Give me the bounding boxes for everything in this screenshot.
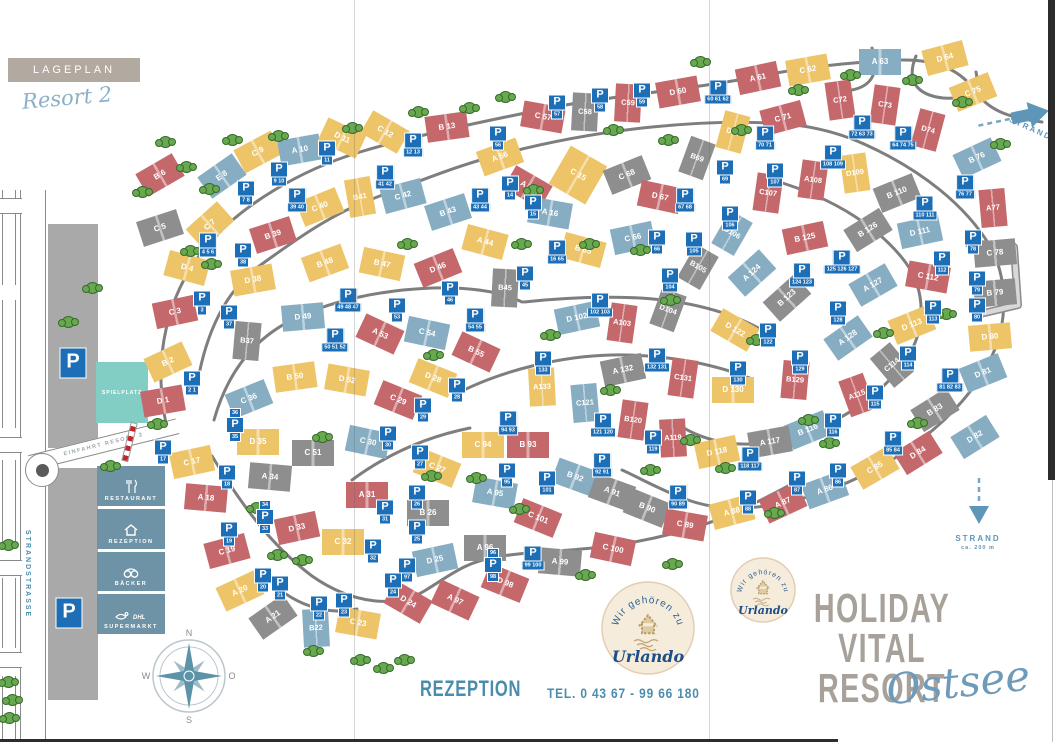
tree-icon [184,245,197,257]
tree-icon [401,238,414,250]
posthorn-icon [116,613,128,619]
building-A-34: A 34 [248,462,292,492]
tree-icon [136,186,149,198]
parking-marker-106: P106 [721,206,739,231]
parking-lot-south [48,468,98,700]
parking-marker-41-42: P41 42 [375,165,395,190]
parking-marker-86: P86 [829,463,847,488]
parking-marker-79: P79 [968,271,986,296]
compass-rose: N O S W [139,626,239,726]
parking-marker-58: P58 [591,88,609,113]
cross-street [0,437,22,453]
reception-phone: REZEPTION TEL. 0 43 67 - 99 66 180 [420,676,727,702]
parking-marker-46: P46 [441,281,459,306]
tree-icon [792,84,805,96]
tree-icon [544,329,557,341]
tree-icon [203,183,216,195]
tree-icon [877,327,890,339]
side-street [2,578,16,648]
tree-icon [604,384,617,396]
scan-edge [1052,480,1054,742]
parking-marker-30: P30 [379,426,397,451]
parking-marker-16-65: P16 65 [547,240,567,265]
parking-marker-29: P29 [414,398,432,423]
parking-marker-70-71: P70 71 [755,126,775,151]
tree-icon [607,124,620,136]
parking-marker-43-44: P43 44 [470,188,490,213]
building-D-49: D 49 [281,302,325,332]
parking-marker-125-126-127: P125 126 127 [824,250,861,275]
parking-marker-28: P28 [448,378,466,403]
parking-marker-39-40: P39 40 [287,188,307,213]
parking-marker: P [60,348,87,379]
parking-marker-128: P128 [829,301,847,326]
parking-marker-17: P17 [154,440,172,465]
legend-restaurant: RESTAURANT [97,466,165,506]
parking-marker-15: P15 [524,195,542,220]
tree-icon [634,244,647,256]
parking-marker-69: P69 [716,160,734,185]
urlando-badge: Wir gehören zu Urlando [601,581,695,675]
parking-marker-19: P19 [220,522,238,547]
building-C-32: C 32 [322,529,364,555]
cross-street [0,652,22,668]
building-A-63: A 63 [859,49,901,75]
tree-icon [662,134,675,146]
parking-marker-57: P57 [548,95,566,120]
tree-icon [307,645,320,657]
tree-icon [956,96,969,108]
tree-icon [62,316,75,328]
legend-rezeption-label: REZEPTION [109,539,154,545]
parking-marker-85-84: P85 84 [883,431,903,456]
building-A-77: A77 [978,188,1007,228]
parking-marker-72-63-73: P72 63 73 [848,115,875,140]
parking-marker-97: P97 [398,558,416,583]
parking-marker-20: P20 [254,568,272,593]
scan-edge [1048,0,1055,480]
parking-marker-4-5-6: P4 5 6 [199,233,217,258]
parking-marker-27: P27 [411,445,429,470]
parking-marker-56: P56 [489,126,507,151]
urlando-badge: Wir gehören zu Urlando [730,557,796,623]
legend-baecker-label: BÄCKER [115,581,148,587]
parking-marker-114: P114 [899,346,917,371]
parking-marker-116: P116 [824,413,842,438]
tree-icon [180,161,193,173]
side-street [2,460,16,548]
tree-icon [844,69,857,81]
parking-marker-95: P95 [498,463,516,488]
parking-marker-115: P115 [866,385,884,410]
compass-n: N [186,628,193,638]
building-C-94: C 94 [462,432,504,458]
reception-tel: TEL. 0 43 67 - 99 66 180 [547,685,700,701]
parking-marker-124-123: P124 123 [789,263,815,288]
parking-lot-north [48,224,98,448]
parking-marker-21: P21 [271,576,289,601]
parking-marker-101: P101 [538,471,556,496]
building-C-51: C 51 [292,440,334,466]
tree-icon [499,91,512,103]
strand-bottom-distance: ca. 200 m [948,545,1008,551]
tree-icon [296,554,309,566]
svg-text:Urlando: Urlando [738,604,788,617]
roundabout [25,453,59,487]
parking-marker-38: P38 [234,243,252,268]
parking-marker-2-1: P2 1 [183,371,201,396]
parking-marker-118-117: P118 117 [737,447,762,472]
parking-marker-11: P11 [318,141,336,166]
parking-marker-53: P53 [388,298,406,323]
parking-marker-94-93: P94 93 [498,411,518,436]
parking-marker-45: P45 [516,266,534,291]
parking-marker-37: P37 [220,305,238,330]
parking-marker-119: P119 [644,430,662,455]
parking-marker-102-103: P102 103 [587,293,613,318]
parking-marker-130: P130 [729,361,747,386]
dhl-icon: DHL [133,615,146,621]
tree-icon [272,130,285,142]
tree-icon [6,694,19,706]
tree-icon [159,136,172,148]
tree-icon [694,56,707,68]
parking-marker-67-68: P67 68 [675,188,695,213]
parking-marker-110-111: P110 111 [913,196,938,221]
strand-arrow-bottom-icon [965,478,993,530]
building-C-131: C131 [667,357,698,398]
parking-marker-50-51-52: P50 51 52 [321,328,348,353]
parking-marker-107: P107 [766,163,784,188]
parking-marker-113: P113 [924,300,942,325]
resort-site-map: EINFAHRT RESORT 2 LAGEPLAN Resort 2 SPIE… [0,0,1055,742]
svg-text:Urlando: Urlando [612,647,685,666]
cross-street [0,560,22,576]
tree-icon [470,472,483,484]
parking-marker-9-10: P9 10 [270,162,288,187]
tree-icon [2,676,15,688]
parking-marker-54-55: P54 55 [465,308,485,333]
house-icon [123,523,139,537]
tree-icon [513,503,526,515]
parking-marker-133: P133 [534,351,552,376]
tree-icon [666,558,679,570]
parking-marker-22: P22 [310,596,328,621]
parking-marker-3: P3 [193,291,211,316]
strandstrasse-label: STRANDSTRASSE [24,530,31,720]
parking-marker-80: P80 [968,298,986,323]
fork-knife-icon [123,479,139,494]
parking-marker-108-109: P108 109 [820,145,846,170]
legend-restaurant-label: RESTAURANT [105,496,157,502]
parking-marker-104: P104 [661,268,679,293]
tree-icon [377,662,390,674]
tree-icon [104,460,117,472]
tree-icon [644,464,657,476]
parking-marker-78: P78 [964,230,982,255]
legend-baecker: BÄCKER [97,552,165,591]
parking-marker-33: 34P33 [256,500,274,534]
parking-marker-31: P31 [376,500,394,525]
parking-marker-98: 96P98 [484,548,502,582]
building-B-45: B45 [491,268,519,307]
building-B-93: B 93 [507,432,549,458]
tree-icon [398,654,411,666]
tree-icon [463,102,476,114]
tree-icon [3,712,16,724]
building-D-80: D 80 [968,322,1012,352]
tree-icon [346,122,359,134]
tree-icon [719,462,732,474]
tree-icon [86,282,99,294]
tree-icon [579,569,592,581]
parking-marker-87: P87 [788,471,806,496]
parking-marker-132-131: P132 131 [644,348,670,373]
fold-line [354,0,355,742]
parking-marker-12-13: P12 13 [403,133,423,158]
parking-marker-66: P66 [648,230,666,255]
parking-marker-14: P14 [501,176,519,201]
parking-marker-26: P26 [408,485,426,510]
tree-icon [802,414,815,426]
compass-e: O [228,671,235,681]
parking-marker-121-120: P121 120 [590,413,616,438]
parking-marker-59: P59 [633,83,651,108]
parking-marker-81-82-83: P81 82 83 [936,368,963,393]
tree-icon [911,417,924,429]
parking-marker-112: P112 [933,251,951,276]
tree-icon [205,258,218,270]
tree-icon [735,124,748,136]
parking-marker-99-100: P99 100 [522,546,545,571]
tree-icon [684,434,697,446]
tree-icon [226,134,239,146]
parking-marker-92-91: P92 91 [592,453,612,478]
legend-rezeption: REZEPTION [97,509,165,549]
tree-icon [515,238,528,250]
parking-marker-90-89: P90 89 [668,485,688,510]
reception-label: REZEPTION [420,676,521,702]
pretzel-icon [122,566,140,579]
tree-icon [354,654,367,666]
tree-icon [2,539,15,551]
parking-marker-35: 36P35 [226,408,244,442]
parking-marker-88: P88 [739,490,757,515]
tree-icon [823,437,836,449]
tree-icon [583,238,596,250]
parking-marker-18: P18 [218,465,236,490]
tree-icon [425,470,438,482]
resort-title-line1: HOLIDAY [784,588,980,628]
tree-icon [664,294,677,306]
compass-w: W [142,671,151,681]
parking-marker-49-48-47: P49 48 47 [334,288,361,313]
parking-marker-64-74-75: P64 74 75 [889,126,916,151]
tree-icon [271,549,284,561]
parking-marker-7-8: P7 8 [237,181,255,206]
tree-icon [906,74,919,86]
tree-icon [412,106,425,118]
svg-text:DHL: DHL [133,615,146,621]
fold-line [709,0,710,742]
parking-marker-25: P25 [408,520,426,545]
parking-marker-129: P129 [791,350,809,375]
parking-marker: P [56,598,83,629]
strand-bottom: STRAND ca. 200 m [948,534,1008,551]
strand-bottom-label: STRAND [948,534,1008,543]
parking-marker-105: P105 [685,232,703,257]
parking-marker-76-77: P76 77 [955,175,975,200]
tree-icon [768,507,781,519]
compass-s: S [186,715,192,725]
tree-icon [316,431,329,443]
parking-marker-122: P122 [759,323,777,348]
parking-marker-23: P23 [335,593,353,618]
tree-icon [151,418,164,430]
page-title: LAGEPLAN [8,58,140,82]
parking-marker-32: P32 [364,539,382,564]
side-street [2,300,16,428]
tree-icon [427,349,440,361]
cross-street [0,198,22,214]
